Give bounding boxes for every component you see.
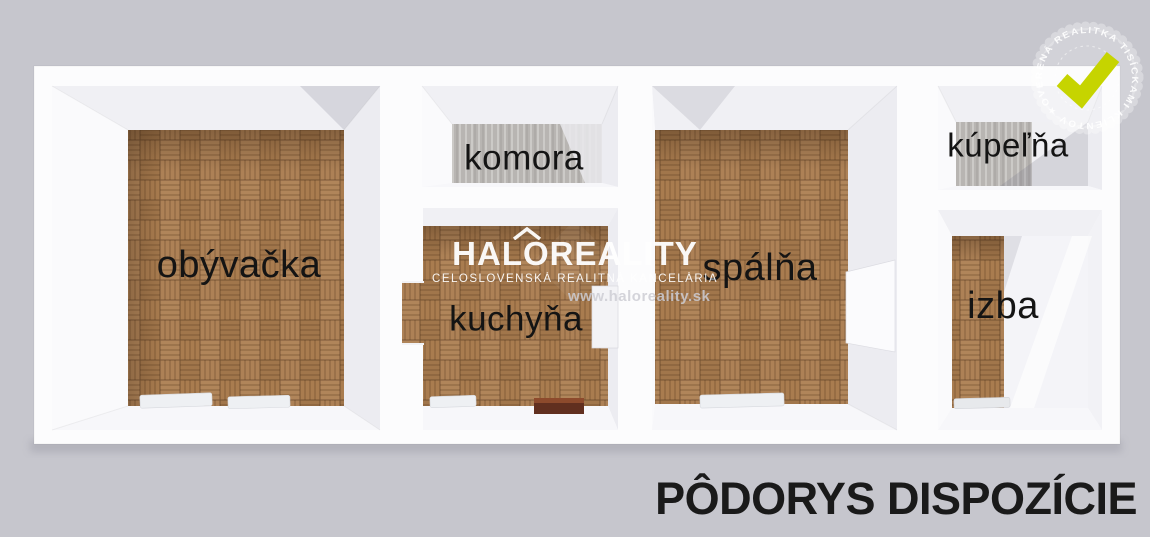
spalna-window-radiator (700, 393, 784, 408)
spalna-door-panel (846, 260, 895, 352)
room-label-komora: komora (464, 141, 584, 176)
room-label-kupelna: kúpeľňa (947, 129, 1068, 162)
izba-window-radiator (954, 397, 1010, 408)
room-label-obyvacka: obývačka (157, 246, 322, 284)
plan-caption: PÔDORYS DISPOZÍCIE (655, 476, 1137, 521)
kuchyna-window-radiator (430, 395, 476, 408)
kuchyna-door-recess (402, 282, 424, 344)
room-label-izba: izba (967, 287, 1039, 325)
verified-badge: OVERENÁ REALITKA TISÍCKAMI KLIENTOV ★ (1034, 25, 1140, 131)
floorplan-image: OVERENÁ REALITKA TISÍCKAMI KLIENTOV ★ ob… (0, 0, 1150, 537)
kuchyna-cabinet (534, 398, 584, 414)
room-label-kuchyna: kuchyňa (449, 302, 583, 337)
kuchyna-counter (592, 286, 618, 348)
room-label-spalna: spálňa (703, 249, 818, 287)
